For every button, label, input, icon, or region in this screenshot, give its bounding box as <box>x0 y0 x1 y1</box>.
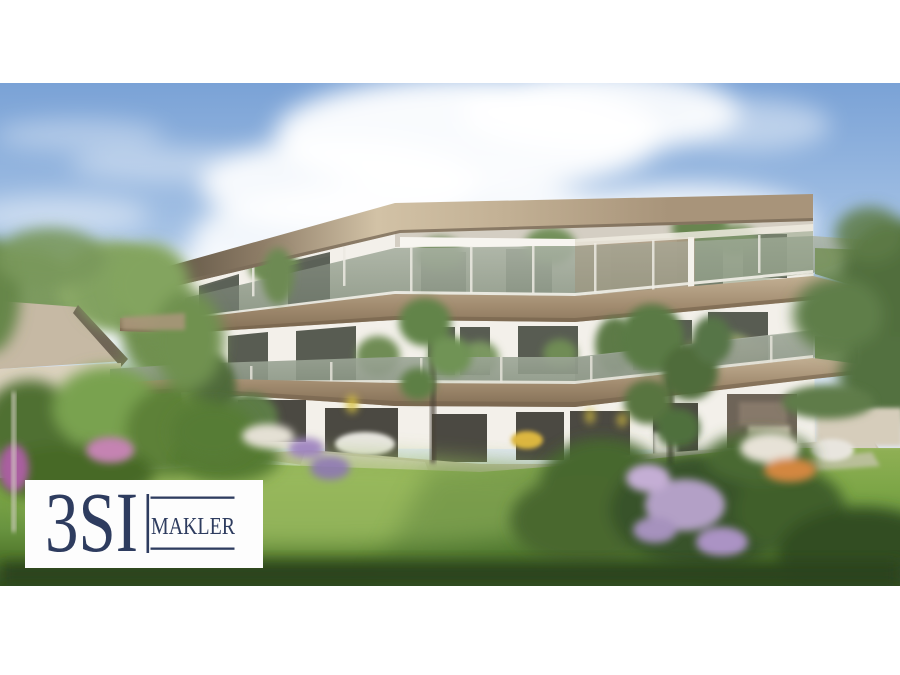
svg-text:3SI: 3SI <box>45 474 138 570</box>
svg-text:MAKLER: MAKLER <box>151 513 236 540</box>
